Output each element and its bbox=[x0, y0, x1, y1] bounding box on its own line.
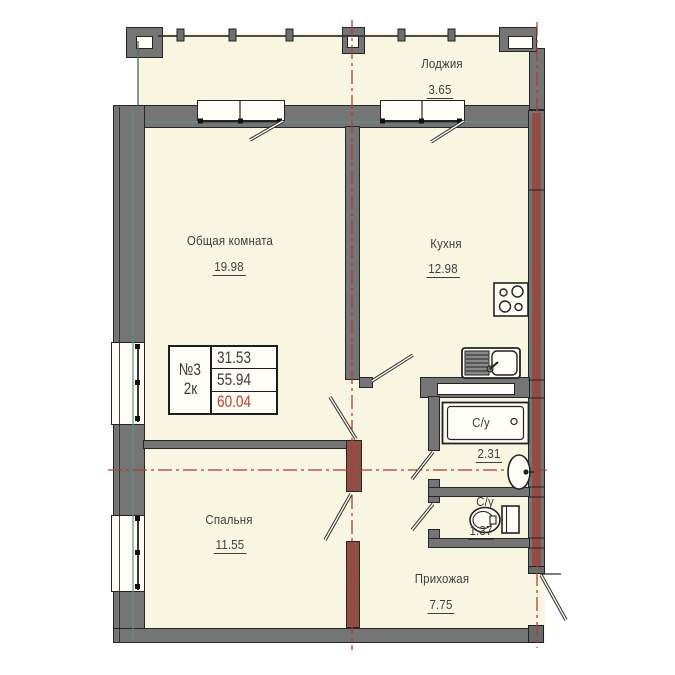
window-livingroom-left bbox=[111, 342, 145, 425]
bathroom-area: 2.31 bbox=[476, 446, 502, 461]
apartment-number-cell: №3 2к bbox=[170, 347, 212, 413]
window-bedroom-left bbox=[111, 515, 145, 592]
window-kitchen-loggia bbox=[380, 100, 465, 121]
entrance-wall-cap bbox=[528, 566, 545, 574]
bathroom-label: С/у bbox=[472, 415, 490, 430]
usable-area-value: 55.94 bbox=[212, 369, 276, 391]
apartment-number: №3 bbox=[179, 361, 201, 380]
wall-kitchen-livingroom bbox=[345, 126, 360, 380]
bedroom-label: Спальня bbox=[205, 512, 252, 527]
wall-bottom bbox=[113, 628, 543, 643]
pier-bedroom-hall bbox=[346, 440, 362, 492]
wall-niche bbox=[437, 383, 515, 395]
total-area-value: 60.04 bbox=[212, 392, 276, 413]
apartment-info-table: №3 2к 31.53 55.94 60.04 bbox=[168, 345, 278, 415]
wall-livingroom-bedroom bbox=[143, 440, 350, 449]
column-top-center-core bbox=[347, 35, 359, 48]
wall-bath-left-a bbox=[428, 396, 440, 451]
kitchen-label: Кухня bbox=[430, 236, 462, 251]
hallway-area: 7.75 bbox=[428, 597, 454, 612]
wall-top bbox=[113, 105, 545, 128]
wall-kitchen-door-cap bbox=[359, 377, 373, 388]
apartment-type: 2к bbox=[183, 380, 197, 399]
wall-right-brick-stripe bbox=[532, 113, 541, 571]
hallway-label: Прихожая bbox=[415, 571, 469, 586]
wc-label: С/у bbox=[476, 494, 494, 509]
bottom-wall-end-cap bbox=[528, 625, 544, 643]
living-area-value: 31.53 bbox=[212, 347, 276, 369]
livingroom-label: Общая комната bbox=[187, 233, 273, 248]
loggia-floor bbox=[137, 33, 530, 113]
wc-area: 1.37 bbox=[468, 523, 494, 538]
kitchen-area: 12.98 bbox=[426, 261, 459, 276]
column-top-left-core bbox=[136, 36, 153, 49]
floor-plan: Лоджия 3.65 Общая комната 19.98 Кухня 12… bbox=[0, 0, 675, 675]
wall-bedroom-hall-lower bbox=[346, 541, 360, 628]
loggia-right-wall bbox=[529, 48, 545, 110]
window-livingroom-loggia bbox=[197, 100, 285, 121]
loggia-area: 3.65 bbox=[427, 82, 453, 97]
apartment-areas-cells: 31.53 55.94 60.04 bbox=[212, 347, 276, 413]
livingroom-area: 19.98 bbox=[212, 259, 245, 274]
column-top-right-core bbox=[508, 36, 533, 49]
bedroom-area: 11.55 bbox=[214, 537, 246, 552]
loggia-label: Лоджия bbox=[421, 56, 463, 71]
